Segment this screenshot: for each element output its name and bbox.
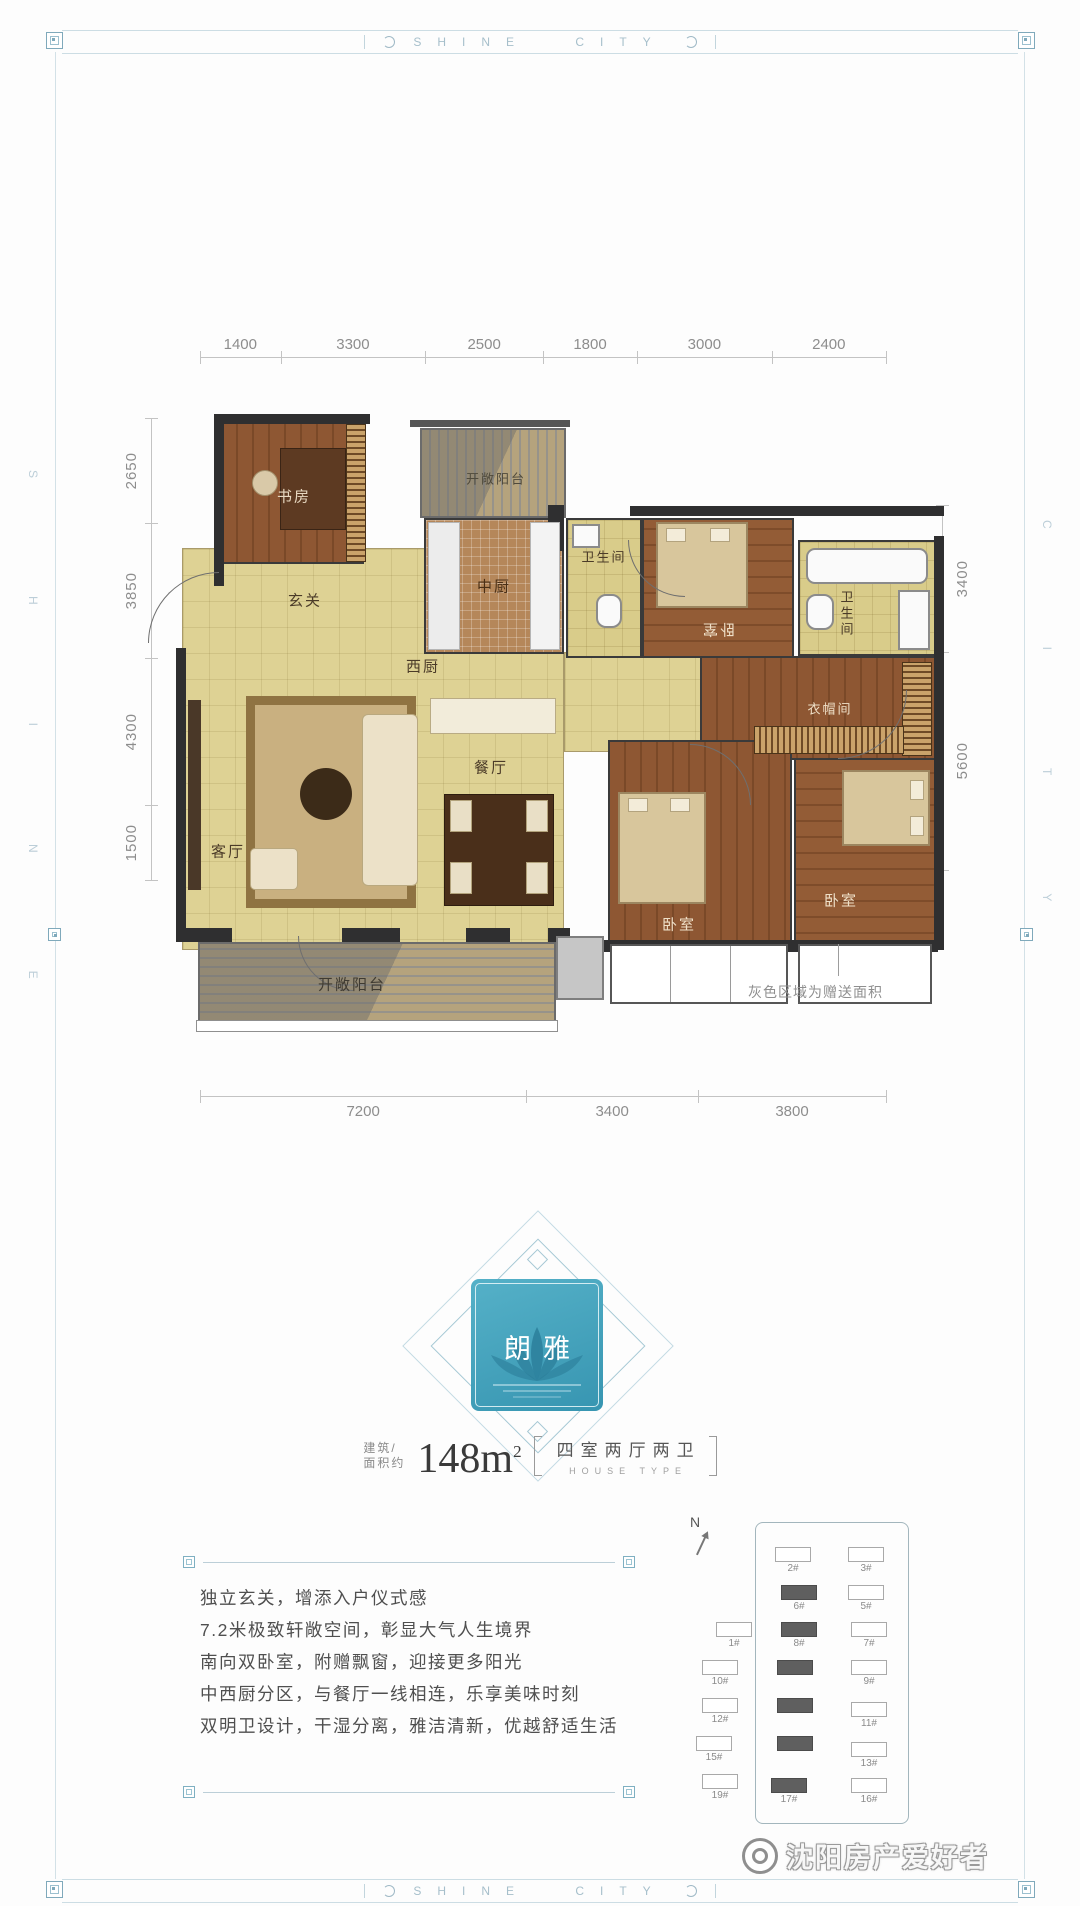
building-label: 17# [762,1794,816,1805]
building-highlighted: 6# [781,1585,817,1600]
compass-north-label: N [690,1514,700,1530]
rule-ornament-icon [623,1556,635,1568]
frame-left-line [55,52,56,1879]
building-highlighted [777,1660,813,1675]
building: 15# [696,1736,732,1751]
building: 13# [851,1742,887,1757]
flourish-icon [685,36,697,48]
building: 9# [851,1660,887,1675]
flourish-icon [383,1885,395,1897]
study-chair [252,470,278,496]
building-highlighted [777,1736,813,1751]
dimension-strip-left: 2650 3850 4300 1500 [112,418,152,880]
kitchen-counter [530,522,560,650]
dimension-value: 3850 [112,523,152,658]
building-label: 3# [839,1563,893,1574]
room-label-cloakroom: 衣帽间 [807,699,852,718]
feature-line: 南向双卧室，附赠飘窗，迎接更多阳光 [200,1646,760,1678]
corner-ornament-icon [46,32,63,49]
feature-rule-top [183,1556,635,1568]
building-label: 1# [707,1638,761,1649]
room-label-dining: 餐厅 [474,757,508,778]
building-label: 2# [766,1563,820,1574]
building-label: 10# [693,1676,747,1687]
room-label-living: 客厅 [211,841,245,862]
building: 1# [716,1622,752,1637]
toilet [806,594,834,630]
edge-letters-right: CITY [1040,520,1054,1019]
divider-tick [364,35,365,49]
building: 11# [851,1702,887,1717]
dimension-value: 3800 [698,1096,886,1120]
dimension-value: 5600 [942,652,982,870]
area-label-line2: 面积约 [363,1456,405,1471]
balcony-window-sill [196,1020,558,1032]
building-label: 15# [687,1752,741,1763]
feature-line: 双明卫设计，干湿分离，雅洁清新，优越舒适生活 [200,1710,760,1742]
building-label: 8# [772,1638,826,1649]
kitchen-island [430,698,556,734]
rule-ornament-icon [183,1786,195,1798]
project-name: 朗雅 [471,1327,603,1366]
building: 7# [851,1622,887,1637]
building: 19# [702,1774,738,1789]
room-label-study: 书房 [277,486,311,507]
dimension-value: 3300 [281,336,426,358]
room-label-bathroom-2: 卫生间 [837,590,856,638]
dimension-value: 4300 [112,658,152,805]
bracket-left [534,1436,542,1476]
house-type: 四室两厅两卫 HOUSE TYPE [550,1436,701,1476]
bottom-border-band: SHINE CITY [62,1879,1018,1903]
building: 3# [848,1547,884,1562]
rule-ornament-icon [183,1556,195,1568]
wall [630,506,944,516]
wardrobe [902,662,932,756]
corridor [564,652,706,752]
room-label-entry: 玄关 [288,590,322,611]
dimension-value: 2400 [772,336,886,358]
dining-chair [526,800,548,832]
sink [572,524,600,548]
project-badge: 朗雅 [471,1279,603,1411]
area-label: 建筑/ 面积约 [363,1441,405,1471]
room-label-bedroom-north: 卧室 [701,620,735,641]
frame-right-line [1024,52,1025,1879]
room-label-western-kitchen: 西厨 [406,656,440,677]
dimension-value: 1800 [543,336,637,358]
door-arc [148,572,219,643]
dimension-value: 3400 [942,505,982,652]
building-label: 12# [693,1714,747,1725]
wall [176,648,186,942]
dining-chair [450,862,472,894]
divider-tick [364,1884,365,1898]
room-label-chinese-kitchen: 中厨 [477,576,511,597]
dimension-value: 3400 [526,1096,698,1120]
divider-tick [715,1884,716,1898]
wall [214,414,224,568]
flyer-page: SHINE CITY SHINE CITY SHINE CITY 1400 33… [0,0,1080,1906]
building-highlighted: 8# [781,1622,817,1637]
dimension-value: 2500 [425,336,543,358]
room-label-bedroom-right: 卧室 [824,890,858,911]
note-leader-line [838,944,839,976]
edge-letters-left: SHINE [26,470,40,1097]
bathtub [806,548,928,584]
watermark-logo-icon [742,1838,778,1874]
building-label: 13# [842,1758,896,1769]
wall [180,928,232,942]
room-label-open-balcony: 开敞阳台 [318,974,386,995]
bath-vanity [898,590,930,650]
flourish-icon [685,1885,697,1897]
room-label-bathroom-1: 卫生间 [581,547,626,566]
building-label: 5# [839,1601,893,1612]
gift-area-note: 灰色区域为赠送面积 [748,982,883,1002]
area-info-row: 建筑/ 面积约 148m2 四室两厅两卫 HOUSE TYPE [0,1432,1080,1479]
building: 12# [702,1698,738,1713]
bed [618,792,706,904]
building: 5# [848,1585,884,1600]
area-value: 148m2 [417,1432,521,1479]
pillow [628,798,648,812]
pillow [670,798,690,812]
dimension-strip-bottom: 7200 3400 3800 [200,1096,886,1120]
room-label-service-balcony: 开敞阳台 [466,469,526,488]
pillow [910,780,924,800]
building-label: 6# [772,1601,826,1612]
pillow [910,816,924,836]
house-type-cn: 四室两厅两卫 [550,1436,701,1461]
rule-ornament-icon [623,1786,635,1798]
watermark-text: 沈阳房产爱好者 [786,1836,989,1875]
dimension-strip-top: 1400 3300 2500 1800 3000 2400 [200,336,886,358]
armchair [250,848,298,890]
house-type-en: HOUSE TYPE [550,1466,701,1476]
corner-ornament-icon [1018,1881,1035,1898]
dimension-value: 7200 [200,1096,526,1120]
building-label: 7# [842,1638,896,1649]
building-label: 9# [842,1676,896,1687]
bed [842,770,930,846]
edge-ornament-icon [48,928,61,941]
building-highlighted [777,1698,813,1713]
corner-ornament-icon [46,1881,63,1898]
dining-chair [526,862,548,894]
feature-rule-bottom [183,1786,635,1798]
flourish-icon [383,36,395,48]
coffee-table [300,768,352,820]
dimension-value: 3000 [637,336,772,358]
toilet [596,594,622,628]
divider-tick [715,35,716,49]
dimension-strip-right: 3400 5600 [942,505,982,870]
area-sup: 2 [513,1442,522,1461]
dining-chair [450,800,472,832]
bracket-right [709,1436,717,1476]
wall [410,420,570,427]
compass-arrow-icon [696,1533,708,1556]
feature-list: 独立玄关，增添入户仪式感 7.2米极致轩敞空间，彰显大气人生境界 南向双卧室，附… [200,1582,760,1742]
brand-top: SHINE CITY [413,35,666,49]
wall [934,536,944,950]
building-label: 11# [842,1718,896,1729]
area-label-line1: 建筑/ [363,1441,405,1456]
building-label: 19# [693,1790,747,1801]
wall [214,414,370,424]
pillow [710,528,730,542]
building-label: 16# [842,1794,896,1805]
feature-line: 7.2米极致轩敞空间，彰显大气人生境界 [200,1614,760,1646]
dimension-value: 2650 [112,418,152,523]
edge-ornament-icon [1020,928,1033,941]
study-shelf [346,424,366,562]
kitchen-counter [428,522,460,650]
top-border-band: SHINE CITY [62,30,1018,54]
building: 2# [775,1547,811,1562]
room-label-bedroom-mid: 卧室 [662,914,696,935]
tv-cabinet [188,700,201,890]
dimension-value: 1500 [112,805,152,880]
brand-bottom: SHINE CITY [413,1884,666,1898]
building-highlighted: 17# [771,1778,807,1793]
dimension-value: 1400 [200,336,281,358]
rule-line [203,1562,615,1563]
wall [466,928,510,942]
corner-ornament-icon [1018,32,1035,49]
feature-line: 独立玄关，增添入户仪式感 [200,1582,760,1614]
watermark: 沈阳房产爱好者 [742,1836,989,1875]
building: 16# [851,1778,887,1793]
rule-line [203,1792,615,1793]
building: 10# [702,1660,738,1675]
house-type-box: 四室两厅两卫 HOUSE TYPE [534,1436,717,1476]
gift-bay-window [556,936,604,1000]
feature-line: 中西厨分区，与餐厅一线相连，乐享美味时刻 [200,1678,760,1710]
sofa [362,714,418,886]
